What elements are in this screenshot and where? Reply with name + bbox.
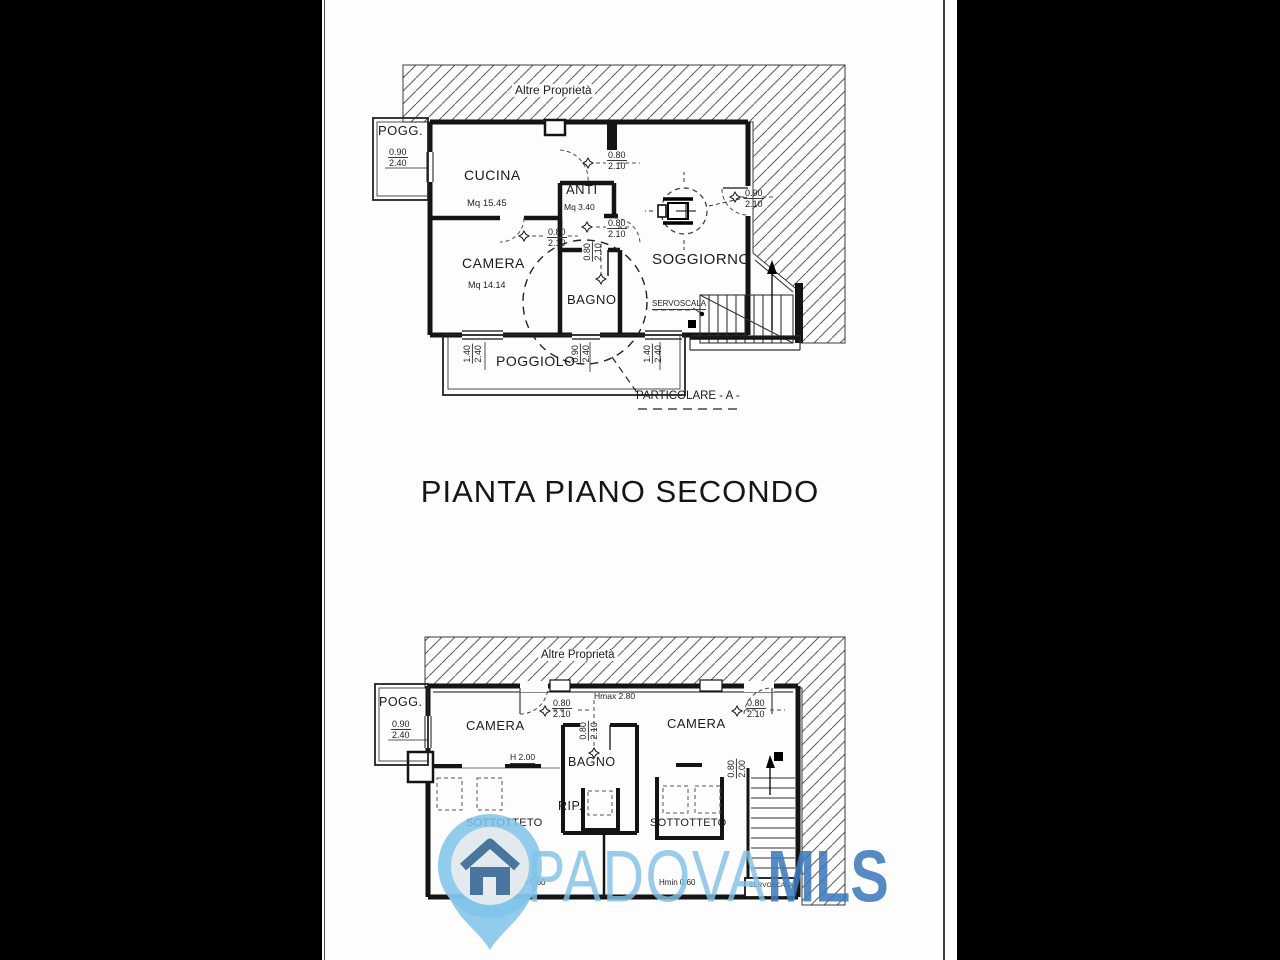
dim-door-bagno-bottom: 0.80 2.10 (578, 721, 600, 741)
room-label-camera-top: CAMERA (462, 256, 525, 271)
dim-door-right-bottom: 0.80 2.10 (746, 698, 766, 720)
dim-door-bagno-top: 0.80 2.10 (582, 242, 604, 262)
hmax-label: Hmax 2.80 (594, 692, 635, 701)
area-label-cucina: Mq 15.45 (467, 199, 507, 209)
room-label-cucina: CUCINA (464, 168, 521, 183)
dim-door-anti: 0.80 2.10 (607, 218, 627, 240)
scanned-floorplan-page: { "title": "PIANTA PIANO SECONDO", "plan… (0, 0, 1280, 960)
boundary-label-bottom: Altre Proprietà (538, 649, 618, 661)
wheelchair-icon (645, 172, 748, 250)
hmin-right-label: Hmin 0.60 (659, 879, 695, 887)
dim-pogg-bottom: 0.90 2.40 (391, 719, 411, 741)
dim-door-left-bottom: 0.80 2.10 (552, 698, 572, 720)
dim-stair: 0.80 2.00 (726, 759, 748, 779)
servoscala-label-top: SERVOSCALA (652, 300, 706, 310)
dim-window-center: 0.90 2.40 (570, 344, 592, 364)
stairs-bottom-plan (751, 752, 795, 868)
room-label-pogg-bottom: POGG. (379, 696, 422, 709)
boundary-label-top: Altre Proprietà (512, 84, 595, 97)
poggiolo-label: POGGIOLO (496, 354, 575, 369)
dim-window-right: 1.40 2.40 (642, 344, 664, 364)
room-label-soggiorno: SOGGIORNO (652, 252, 751, 268)
dim-door-top: 0.80 2.10 (607, 150, 627, 172)
floorplan-drawing-layer: Altre Proprietà POGG. 0.90 2.40 CUCINA M… (0, 0, 1280, 960)
room-label-rip: RIP. (558, 800, 583, 813)
area-label-anti: Mq 3.40 (564, 203, 595, 212)
dim-door-soggiorno: 0.90 2.10 (744, 188, 764, 210)
room-label-sottotteto-right: SOTTOTTETO (650, 818, 727, 830)
dim-pogg-top: 0.90 2.40 (388, 147, 408, 169)
room-label-anti: ANTI (566, 183, 598, 197)
room-label-sottotteto-left: SOTTOTTETO (466, 818, 543, 830)
servoscala-marker-top (653, 308, 704, 328)
room-label-bagno-bottom: BAGNO (568, 756, 616, 769)
hmin-left-label: Hmin 0.60 (509, 879, 545, 887)
plan-bottom-drawing (375, 637, 845, 905)
dim-window-left: 1.40 2.40 (462, 344, 484, 364)
particolare-label: PARTICOLARE - A - (636, 390, 740, 402)
room-label-pogg-top: POGG. (378, 124, 423, 138)
h200-label: H 2.00 (510, 753, 535, 764)
area-label-camera-top: Mq 14.14 (468, 281, 506, 290)
room-label-camera-right: CAMERA (667, 717, 726, 731)
servoscala-label-bottom: SERVOSCALA (749, 883, 793, 890)
room-label-bagno-top: BAGNO (567, 293, 616, 307)
dim-door-camera: 0.80 2.10 (547, 227, 567, 249)
room-label-camera-left: CAMERA (466, 719, 525, 733)
plan-title: PIANTA PIANO SECONDO (370, 474, 870, 510)
